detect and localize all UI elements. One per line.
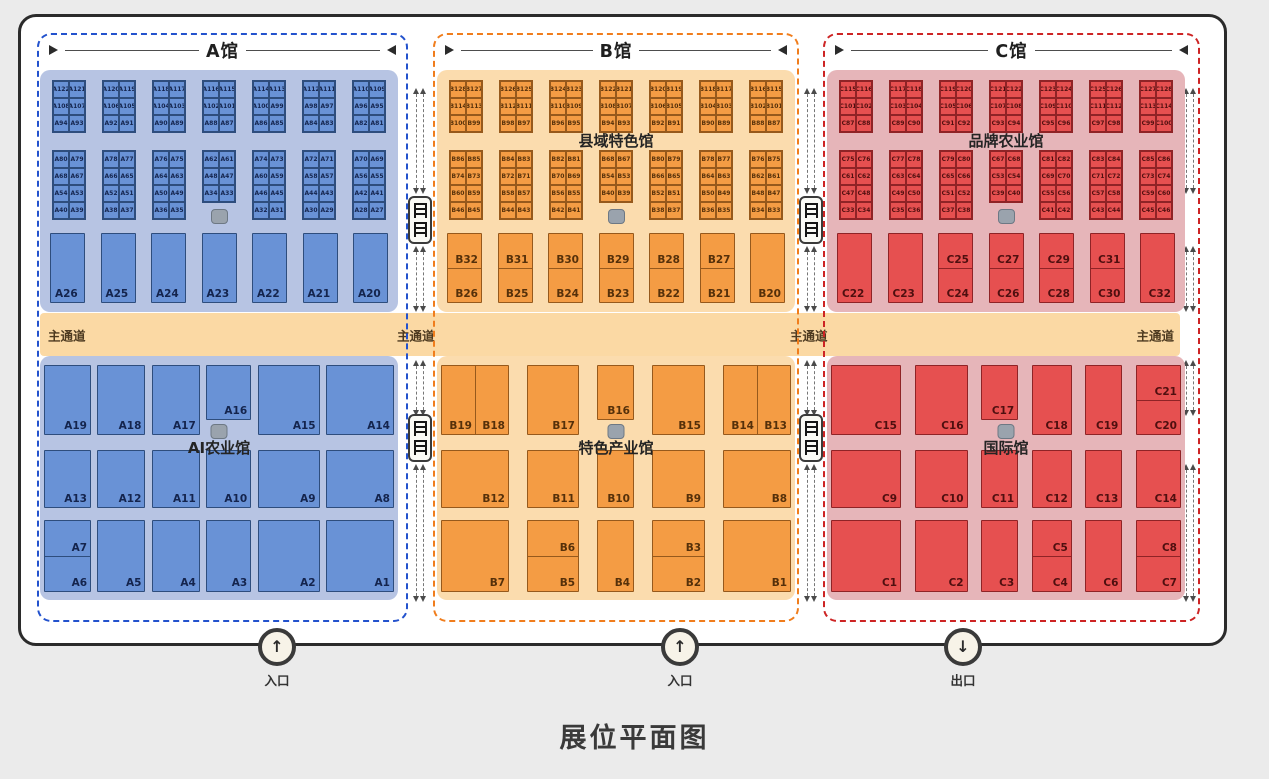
booth-C86[interactable]: C86 xyxy=(1156,151,1172,168)
booth-B5[interactable]: B5 xyxy=(528,556,578,591)
booth-B25[interactable]: B25 xyxy=(499,268,532,302)
booth-A121[interactable]: A121 xyxy=(69,81,85,98)
booth-A42[interactable]: A42 xyxy=(353,185,369,202)
booth-B66[interactable]: B66 xyxy=(650,168,666,185)
booth-A19[interactable]: A19 xyxy=(44,365,91,435)
booth-A9[interactable]: A9 xyxy=(258,450,320,508)
booth-A14[interactable]: A14 xyxy=(326,365,394,435)
booth-B70[interactable]: B70 xyxy=(550,168,566,185)
booth-C50[interactable]: C50 xyxy=(906,185,922,202)
booth-A2[interactable]: A2 xyxy=(258,520,320,592)
booth-C77[interactable]: C77 xyxy=(890,151,906,168)
booth-A26[interactable]: A26 xyxy=(50,233,85,303)
booth-B59[interactable]: B59 xyxy=(466,185,482,202)
booth-A90[interactable]: A90 xyxy=(153,115,169,132)
booth-B122[interactable]: B122 xyxy=(600,81,616,98)
booth-B81[interactable]: B81 xyxy=(566,151,582,168)
booth-B27-B21[interactable]: B27B21 xyxy=(700,233,735,303)
booth-A31[interactable]: A31 xyxy=(269,202,285,219)
booth-A4[interactable]: A4 xyxy=(152,520,200,592)
booth-C72[interactable]: C72 xyxy=(1106,168,1122,185)
booth-B80[interactable]: B80 xyxy=(650,151,666,168)
booth-C27-C26[interactable]: C27C26 xyxy=(989,233,1024,303)
booth-C85[interactable]: C85 xyxy=(1140,151,1156,168)
booth-B29-B23[interactable]: B29B23 xyxy=(599,233,634,303)
booth-B51[interactable]: B51 xyxy=(666,185,682,202)
booth-C54[interactable]: C54 xyxy=(1006,168,1022,185)
booth-B28-B22[interactable]: B28B22 xyxy=(649,233,684,303)
booth-A114[interactable]: A114 xyxy=(253,81,269,98)
booth-C5-C4[interactable]: C5C4 xyxy=(1032,520,1072,592)
booth-A115[interactable]: A115 xyxy=(219,81,235,98)
booth-A108[interactable]: A108 xyxy=(53,98,69,115)
booth-C79[interactable]: C79 xyxy=(940,151,956,168)
booth-B69[interactable]: B69 xyxy=(566,168,582,185)
booth-A107[interactable]: A107 xyxy=(69,98,85,115)
booth-B128[interactable]: B128 xyxy=(450,81,466,98)
booth-C56[interactable]: C56 xyxy=(1056,185,1072,202)
booth-A10[interactable]: A10 xyxy=(206,450,251,508)
booth-A102[interactable]: A102 xyxy=(203,98,219,115)
booth-C103[interactable]: C103 xyxy=(890,98,906,115)
booth-B112[interactable]: B112 xyxy=(500,98,516,115)
booth-B52[interactable]: B52 xyxy=(650,185,666,202)
booth-A50[interactable]: A50 xyxy=(153,185,169,202)
booth-A97[interactable]: A97 xyxy=(319,98,335,115)
booth-A21[interactable]: A21 xyxy=(303,233,338,303)
booth-B9[interactable]: B9 xyxy=(652,450,705,508)
booth-B123[interactable]: B123 xyxy=(566,81,582,98)
booth-A58[interactable]: A58 xyxy=(303,168,319,185)
booth-A16[interactable]: A16 xyxy=(206,365,251,420)
booth-B121[interactable]: B121 xyxy=(616,81,632,98)
booth-A64[interactable]: A64 xyxy=(153,168,169,185)
booth-B33[interactable]: B33 xyxy=(766,202,782,219)
booth-A57[interactable]: A57 xyxy=(319,168,335,185)
booth-C111[interactable]: C111 xyxy=(1090,98,1106,115)
booth-A37[interactable]: A37 xyxy=(119,202,135,219)
booth-A45[interactable]: A45 xyxy=(269,185,285,202)
booth-A13[interactable]: A13 xyxy=(44,450,91,508)
booth-A17[interactable]: A17 xyxy=(152,365,200,435)
booth-B116[interactable]: B116 xyxy=(750,81,766,98)
booth-A111[interactable]: A111 xyxy=(319,81,335,98)
booth-C109[interactable]: C109 xyxy=(1040,98,1056,115)
booth-A71[interactable]: A71 xyxy=(319,151,335,168)
booth-A74[interactable]: A74 xyxy=(253,151,269,168)
booth-C58[interactable]: C58 xyxy=(1106,185,1122,202)
booth-B72[interactable]: B72 xyxy=(500,168,516,185)
booth-B30-B24[interactable]: B30B24 xyxy=(548,233,583,303)
booth-B55[interactable]: B55 xyxy=(566,185,582,202)
booth-B104[interactable]: B104 xyxy=(700,98,716,115)
booth-C4[interactable]: C4 xyxy=(1033,556,1071,591)
booth-A7[interactable]: A7 xyxy=(45,521,90,557)
booth-B107[interactable]: B107 xyxy=(616,98,632,115)
booth-C45[interactable]: C45 xyxy=(1140,202,1156,219)
booth-B118[interactable]: B118 xyxy=(700,81,716,98)
booth-A86[interactable]: A86 xyxy=(253,115,269,132)
booth-A47[interactable]: A47 xyxy=(219,168,235,185)
booth-B58[interactable]: B58 xyxy=(500,185,516,202)
booth-B32[interactable]: B32 xyxy=(448,234,481,269)
booth-C20[interactable]: C20 xyxy=(1137,400,1180,434)
booth-C14[interactable]: C14 xyxy=(1136,450,1181,508)
booth-A20[interactable]: A20 xyxy=(353,233,388,303)
booth-C41[interactable]: C41 xyxy=(1040,202,1056,219)
booth-C102[interactable]: C102 xyxy=(856,98,872,115)
booth-C120[interactable]: C120 xyxy=(956,81,972,98)
booth-C101[interactable]: C101 xyxy=(840,98,856,115)
booth-B3[interactable]: B3 xyxy=(653,521,704,557)
booth-C24[interactable]: C24 xyxy=(939,268,972,302)
booth-A62[interactable]: A62 xyxy=(203,151,219,168)
booth-C51[interactable]: C51 xyxy=(940,185,956,202)
booth-A89[interactable]: A89 xyxy=(169,115,185,132)
booth-B109[interactable]: B109 xyxy=(566,98,582,115)
booth-A33[interactable]: A33 xyxy=(219,185,235,202)
booth-A34[interactable]: A34 xyxy=(203,185,219,202)
booth-B16[interactable]: B16 xyxy=(597,365,634,420)
booth-A94[interactable]: A94 xyxy=(53,115,69,132)
booth-A28[interactable]: A28 xyxy=(353,202,369,219)
booth-A109[interactable]: A109 xyxy=(369,81,385,98)
booth-B40[interactable]: B40 xyxy=(600,185,616,202)
booth-C84[interactable]: C84 xyxy=(1106,151,1122,168)
booth-A6[interactable]: A6 xyxy=(45,556,90,591)
booth-B23[interactable]: B23 xyxy=(600,268,633,302)
booth-A100[interactable]: A100 xyxy=(253,98,269,115)
booth-A23[interactable]: A23 xyxy=(202,233,237,303)
booth-C43[interactable]: C43 xyxy=(1090,202,1106,219)
booth-C55[interactable]: C55 xyxy=(1040,185,1056,202)
booth-C114[interactable]: C114 xyxy=(1156,98,1172,115)
booth-A56[interactable]: A56 xyxy=(353,168,369,185)
booth-A95[interactable]: A95 xyxy=(369,98,385,115)
booth-C49[interactable]: C49 xyxy=(890,185,906,202)
booth-B110[interactable]: B110 xyxy=(550,98,566,115)
booth-A40[interactable]: A40 xyxy=(53,202,69,219)
booth-B74[interactable]: B74 xyxy=(450,168,466,185)
booth-C35[interactable]: C35 xyxy=(890,202,906,219)
booth-B45[interactable]: B45 xyxy=(466,202,482,219)
booth-B108[interactable]: B108 xyxy=(600,98,616,115)
booth-A82[interactable]: A82 xyxy=(353,115,369,132)
booth-C122[interactable]: C122 xyxy=(1006,81,1022,98)
booth-C9[interactable]: C9 xyxy=(831,450,901,508)
booth-C107[interactable]: C107 xyxy=(990,98,1006,115)
booth-C121[interactable]: C121 xyxy=(990,81,1006,98)
booth-B11[interactable]: B11 xyxy=(527,450,579,508)
booth-B44[interactable]: B44 xyxy=(500,202,516,219)
booth-C38[interactable]: C38 xyxy=(956,202,972,219)
booth-B17[interactable]: B17 xyxy=(527,365,579,435)
booth-B4[interactable]: B4 xyxy=(597,520,634,592)
booth-B63[interactable]: B63 xyxy=(716,168,732,185)
booth-B46[interactable]: B46 xyxy=(450,202,466,219)
booth-C74[interactable]: C74 xyxy=(1156,168,1172,185)
booth-B19[interactable]: B19 xyxy=(442,366,476,434)
booth-A24[interactable]: A24 xyxy=(151,233,186,303)
booth-B57[interactable]: B57 xyxy=(516,185,532,202)
booth-C68[interactable]: C68 xyxy=(1006,151,1022,168)
booth-B67[interactable]: B67 xyxy=(616,151,632,168)
booth-B82[interactable]: B82 xyxy=(550,151,566,168)
booth-B65[interactable]: B65 xyxy=(666,168,682,185)
booth-B24[interactable]: B24 xyxy=(549,268,582,302)
booth-C21[interactable]: C21 xyxy=(1137,366,1180,401)
booth-B13[interactable]: B13 xyxy=(757,366,790,434)
booth-A8[interactable]: A8 xyxy=(326,450,394,508)
booth-C63[interactable]: C63 xyxy=(890,168,906,185)
booth-A106[interactable]: A106 xyxy=(103,98,119,115)
booth-C28[interactable]: C28 xyxy=(1040,268,1073,302)
booth-C31-C30[interactable]: C31C30 xyxy=(1090,233,1125,303)
booth-B83[interactable]: B83 xyxy=(516,151,532,168)
booth-A84[interactable]: A84 xyxy=(303,115,319,132)
booth-A38[interactable]: A38 xyxy=(103,202,119,219)
booth-C5[interactable]: C5 xyxy=(1033,521,1071,557)
booth-A18[interactable]: A18 xyxy=(97,365,145,435)
booth-A117[interactable]: A117 xyxy=(169,81,185,98)
booth-C1[interactable]: C1 xyxy=(831,520,901,592)
booth-A113[interactable]: A113 xyxy=(269,81,285,98)
booth-C22[interactable]: C22 xyxy=(837,233,872,303)
booth-B1[interactable]: B1 xyxy=(723,520,791,592)
booth-B6-B5[interactable]: B6B5 xyxy=(527,520,579,592)
booth-C115[interactable]: C115 xyxy=(840,81,856,98)
booth-C112[interactable]: C112 xyxy=(1106,98,1122,115)
booth-C117[interactable]: C117 xyxy=(890,81,906,98)
booth-A120[interactable]: A120 xyxy=(103,81,119,98)
booth-C71[interactable]: C71 xyxy=(1090,168,1106,185)
booth-B117[interactable]: B117 xyxy=(716,81,732,98)
booth-A92[interactable]: A92 xyxy=(103,115,119,132)
booth-B14-B13[interactable]: B14B13 xyxy=(723,365,791,435)
booth-C21-C20[interactable]: C21C20 xyxy=(1136,365,1181,435)
booth-B113[interactable]: B113 xyxy=(466,98,482,115)
booth-C62[interactable]: C62 xyxy=(856,168,872,185)
booth-C8-C7[interactable]: C8C7 xyxy=(1136,520,1181,592)
booth-B26[interactable]: B26 xyxy=(448,268,481,302)
booth-A105[interactable]: A105 xyxy=(119,98,135,115)
booth-B85[interactable]: B85 xyxy=(466,151,482,168)
booth-A63[interactable]: A63 xyxy=(169,168,185,185)
booth-C3[interactable]: C3 xyxy=(981,520,1018,592)
booth-B28[interactable]: B28 xyxy=(650,234,683,269)
booth-B47[interactable]: B47 xyxy=(766,185,782,202)
booth-B30[interactable]: B30 xyxy=(549,234,582,269)
booth-B86[interactable]: B86 xyxy=(450,151,466,168)
booth-B43[interactable]: B43 xyxy=(516,202,532,219)
booth-B34[interactable]: B34 xyxy=(750,202,766,219)
booth-A59[interactable]: A59 xyxy=(269,168,285,185)
booth-A22[interactable]: A22 xyxy=(252,233,287,303)
booth-C44[interactable]: C44 xyxy=(1106,202,1122,219)
booth-B73[interactable]: B73 xyxy=(466,168,482,185)
booth-B84[interactable]: B84 xyxy=(500,151,516,168)
booth-C34[interactable]: C34 xyxy=(856,202,872,219)
booth-A72[interactable]: A72 xyxy=(303,151,319,168)
booth-C26[interactable]: C26 xyxy=(990,268,1023,302)
booth-B76[interactable]: B76 xyxy=(750,151,766,168)
booth-B37[interactable]: B37 xyxy=(666,202,682,219)
booth-C108[interactable]: C108 xyxy=(1006,98,1022,115)
booth-A76[interactable]: A76 xyxy=(153,151,169,168)
booth-C65[interactable]: C65 xyxy=(940,168,956,185)
booth-B105[interactable]: B105 xyxy=(666,98,682,115)
booth-B10[interactable]: B10 xyxy=(597,450,634,508)
booth-B77[interactable]: B77 xyxy=(716,151,732,168)
booth-A53[interactable]: A53 xyxy=(69,185,85,202)
booth-B49[interactable]: B49 xyxy=(716,185,732,202)
booth-A41[interactable]: A41 xyxy=(369,185,385,202)
booth-A54[interactable]: A54 xyxy=(53,185,69,202)
booth-B22[interactable]: B22 xyxy=(650,268,683,302)
booth-B14[interactable]: B14 xyxy=(724,366,758,434)
booth-B101[interactable]: B101 xyxy=(766,98,782,115)
booth-C32[interactable]: C32 xyxy=(1140,233,1175,303)
booth-C27[interactable]: C27 xyxy=(990,234,1023,269)
booth-C126[interactable]: C126 xyxy=(1106,81,1122,98)
booth-A87[interactable]: A87 xyxy=(219,115,235,132)
booth-B124[interactable]: B124 xyxy=(550,81,566,98)
booth-A83[interactable]: A83 xyxy=(319,115,335,132)
booth-A93[interactable]: A93 xyxy=(69,115,85,132)
booth-B21[interactable]: B21 xyxy=(701,268,734,302)
booth-A35[interactable]: A35 xyxy=(169,202,185,219)
booth-C18[interactable]: C18 xyxy=(1032,365,1072,435)
booth-B61[interactable]: B61 xyxy=(766,168,782,185)
booth-C47[interactable]: C47 xyxy=(840,185,856,202)
booth-A81[interactable]: A81 xyxy=(369,115,385,132)
booth-C53[interactable]: C53 xyxy=(990,168,1006,185)
booth-C39[interactable]: C39 xyxy=(990,185,1006,202)
booth-A60[interactable]: A60 xyxy=(253,168,269,185)
booth-A77[interactable]: A77 xyxy=(119,151,135,168)
booth-B68[interactable]: B68 xyxy=(600,151,616,168)
booth-C46[interactable]: C46 xyxy=(1156,202,1172,219)
booth-C2[interactable]: C2 xyxy=(915,520,968,592)
booth-B15[interactable]: B15 xyxy=(652,365,705,435)
booth-C23[interactable]: C23 xyxy=(888,233,923,303)
booth-B2[interactable]: B2 xyxy=(653,556,704,591)
booth-C17[interactable]: C17 xyxy=(981,365,1018,420)
booth-B19-B18[interactable]: B19B18 xyxy=(441,365,509,435)
booth-C106[interactable]: C106 xyxy=(956,98,972,115)
booth-B125[interactable]: B125 xyxy=(516,81,532,98)
booth-B103[interactable]: B103 xyxy=(716,98,732,115)
booth-C33[interactable]: C33 xyxy=(840,202,856,219)
booth-B79[interactable]: B79 xyxy=(666,151,682,168)
booth-A61[interactable]: A61 xyxy=(219,151,235,168)
booth-C82[interactable]: C82 xyxy=(1056,151,1072,168)
booth-B32-B26[interactable]: B32B26 xyxy=(447,233,482,303)
booth-A91[interactable]: A91 xyxy=(119,115,135,132)
booth-C36[interactable]: C36 xyxy=(906,202,922,219)
booth-A75[interactable]: A75 xyxy=(169,151,185,168)
booth-A36[interactable]: A36 xyxy=(153,202,169,219)
booth-C70[interactable]: C70 xyxy=(1056,168,1072,185)
booth-C76[interactable]: C76 xyxy=(856,151,872,168)
booth-C25[interactable]: C25 xyxy=(939,234,972,269)
booth-C119[interactable]: C119 xyxy=(940,81,956,98)
booth-C124[interactable]: C124 xyxy=(1056,81,1072,98)
booth-A67[interactable]: A67 xyxy=(69,168,85,185)
booth-C19[interactable]: C19 xyxy=(1085,365,1122,435)
booth-C116[interactable]: C116 xyxy=(856,81,872,98)
booth-B75[interactable]: B75 xyxy=(766,151,782,168)
booth-C66[interactable]: C66 xyxy=(956,168,972,185)
booth-C8[interactable]: C8 xyxy=(1137,521,1180,557)
booth-C29[interactable]: C29 xyxy=(1040,234,1073,269)
booth-B115[interactable]: B115 xyxy=(766,81,782,98)
booth-C25-C24[interactable]: C25C24 xyxy=(938,233,973,303)
booth-C73[interactable]: C73 xyxy=(1140,168,1156,185)
booth-B114[interactable]: B114 xyxy=(450,98,466,115)
booth-C15[interactable]: C15 xyxy=(831,365,901,435)
booth-C6[interactable]: C6 xyxy=(1085,520,1122,592)
booth-A7-A6[interactable]: A7A6 xyxy=(44,520,91,592)
booth-C40[interactable]: C40 xyxy=(1006,185,1022,202)
booth-A103[interactable]: A103 xyxy=(169,98,185,115)
booth-A122[interactable]: A122 xyxy=(53,81,69,98)
booth-B71[interactable]: B71 xyxy=(516,168,532,185)
booth-B50[interactable]: B50 xyxy=(700,185,716,202)
booth-C13[interactable]: C13 xyxy=(1085,450,1122,508)
booth-A119[interactable]: A119 xyxy=(119,81,135,98)
booth-C30[interactable]: C30 xyxy=(1091,268,1124,302)
booth-B31-B25[interactable]: B31B25 xyxy=(498,233,533,303)
booth-A52[interactable]: A52 xyxy=(103,185,119,202)
booth-B53[interactable]: B53 xyxy=(616,168,632,185)
booth-A48[interactable]: A48 xyxy=(203,168,219,185)
booth-B20[interactable]: B20 xyxy=(750,233,785,303)
booth-A39[interactable]: A39 xyxy=(69,202,85,219)
booth-B6[interactable]: B6 xyxy=(528,521,578,557)
booth-B18[interactable]: B18 xyxy=(475,366,508,434)
booth-C12[interactable]: C12 xyxy=(1032,450,1072,508)
booth-C64[interactable]: C64 xyxy=(906,168,922,185)
booth-B126[interactable]: B126 xyxy=(500,81,516,98)
booth-A79[interactable]: A79 xyxy=(69,151,85,168)
booth-B64[interactable]: B64 xyxy=(700,168,716,185)
booth-C78[interactable]: C78 xyxy=(906,151,922,168)
booth-A101[interactable]: A101 xyxy=(219,98,235,115)
booth-C61[interactable]: C61 xyxy=(840,168,856,185)
booth-C125[interactable]: C125 xyxy=(1090,81,1106,98)
booth-B35[interactable]: B35 xyxy=(716,202,732,219)
booth-C69[interactable]: C69 xyxy=(1040,168,1056,185)
booth-A25[interactable]: A25 xyxy=(101,233,136,303)
booth-A96[interactable]: A96 xyxy=(353,98,369,115)
booth-C42[interactable]: C42 xyxy=(1056,202,1072,219)
booth-C7[interactable]: C7 xyxy=(1137,556,1180,591)
booth-C60[interactable]: C60 xyxy=(1156,185,1172,202)
booth-C123[interactable]: C123 xyxy=(1040,81,1056,98)
booth-A55[interactable]: A55 xyxy=(369,168,385,185)
booth-A66[interactable]: A66 xyxy=(103,168,119,185)
booth-B42[interactable]: B42 xyxy=(550,202,566,219)
booth-A99[interactable]: A99 xyxy=(269,98,285,115)
booth-B39[interactable]: B39 xyxy=(616,185,632,202)
booth-C113[interactable]: C113 xyxy=(1140,98,1156,115)
booth-A73[interactable]: A73 xyxy=(269,151,285,168)
booth-B7[interactable]: B7 xyxy=(441,520,509,592)
booth-C128[interactable]: C128 xyxy=(1156,81,1172,98)
booth-C67[interactable]: C67 xyxy=(990,151,1006,168)
booth-A104[interactable]: A104 xyxy=(153,98,169,115)
